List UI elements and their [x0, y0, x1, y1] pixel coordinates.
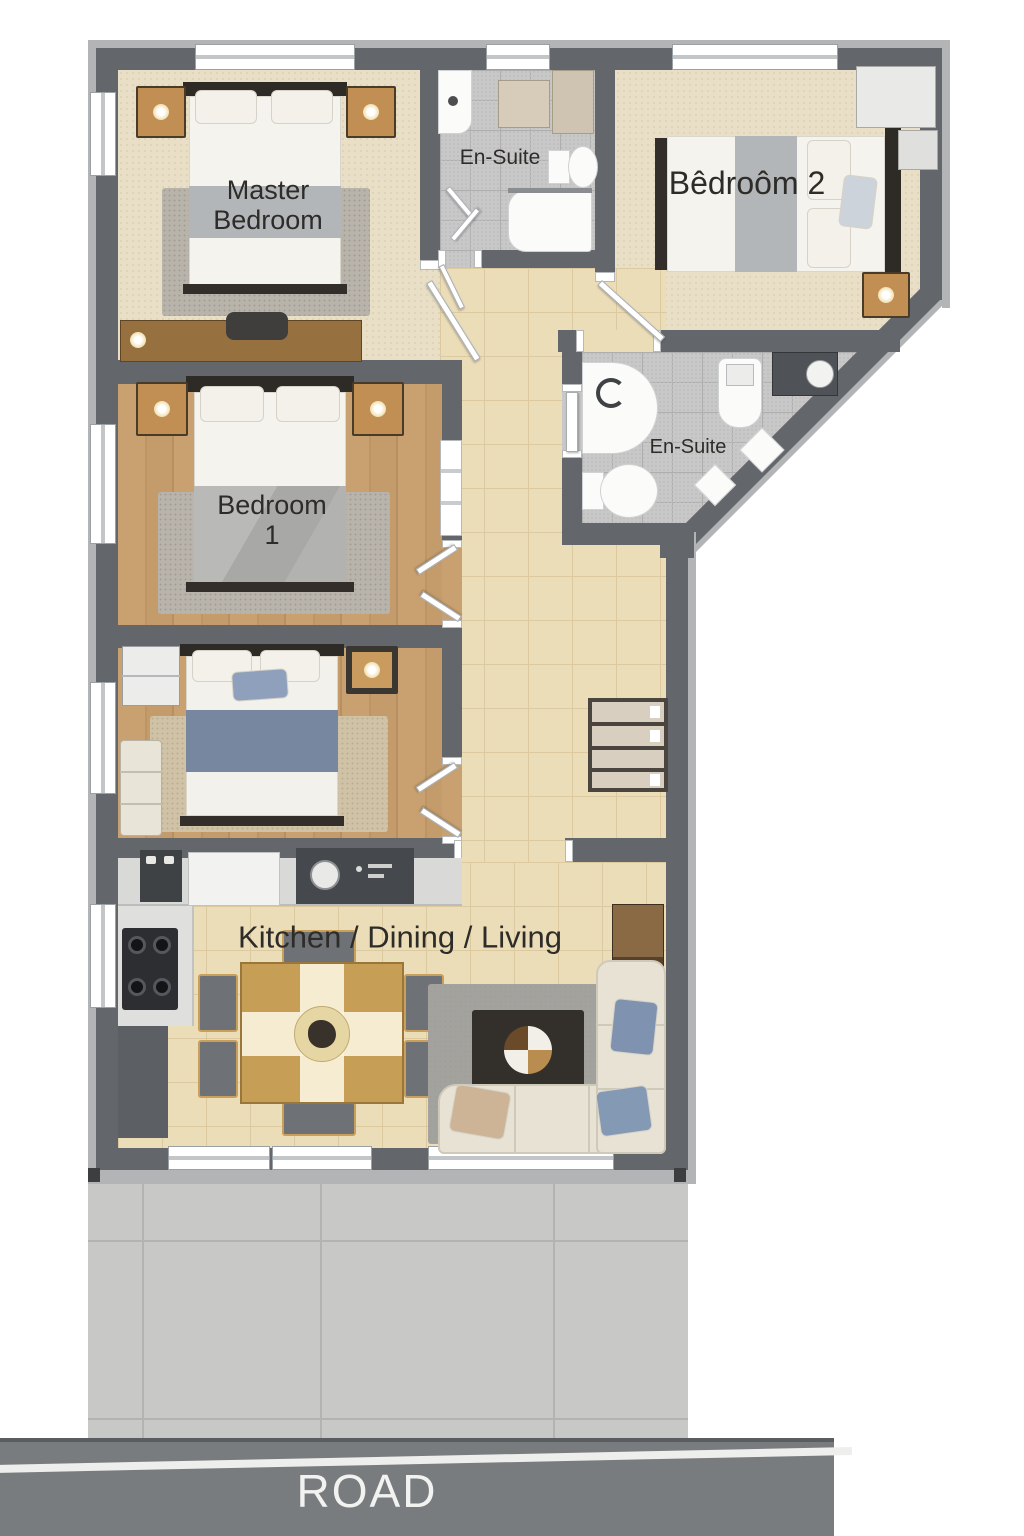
- bench-seam: [120, 803, 162, 805]
- table-lamp: [364, 662, 380, 678]
- kitchen-base-cabinet: [118, 1026, 168, 1138]
- tv-cabinet-top: [613, 905, 663, 957]
- door-jamb: [565, 840, 573, 862]
- floor-plan: Master Bedroom En-Suite Bêdroôm 2 En-Sui…: [0, 0, 1024, 1536]
- wall-ensuite-top-bottom: [480, 250, 615, 268]
- pillow: [200, 386, 264, 422]
- door-jamb: [576, 330, 584, 352]
- label-kitchen-dining-living: Kitchen / Dining / Living: [238, 921, 562, 956]
- door-jamb: [474, 250, 482, 268]
- bedroom2-bed-runner: [735, 136, 797, 272]
- pillow-blue: [231, 668, 289, 702]
- label-line: Bedroom: [217, 490, 327, 520]
- bench-seam: [120, 771, 162, 773]
- label-line: Master: [213, 175, 323, 205]
- table-lamp: [878, 287, 894, 303]
- vanity-basin: [806, 360, 834, 388]
- cabinet-divider: [122, 675, 180, 677]
- door-jamb: [442, 620, 462, 628]
- table-lamp: [154, 401, 170, 417]
- cooktop: [122, 928, 178, 1010]
- sofa-pillow-blue: [595, 1085, 653, 1138]
- table-lamp: [153, 104, 169, 120]
- bedroom3-bed: [180, 644, 344, 826]
- dresser-lamp: [130, 332, 146, 348]
- dining-table: [240, 962, 404, 1104]
- window-ensuite-top: [486, 44, 550, 70]
- sink-basin: [310, 860, 340, 890]
- door-jamb: [562, 384, 582, 392]
- toilet-bowl: [600, 464, 658, 518]
- dining-chair-left-1: [198, 974, 238, 1032]
- coffee-table-decor: [504, 1026, 552, 1074]
- ensuite-mid-toilet: [582, 462, 660, 520]
- bedroom1-bed-footboard: [186, 582, 354, 592]
- wall-end-cap-left: [88, 1168, 100, 1182]
- burner: [153, 978, 171, 996]
- kitchen-island-cabinet: [188, 852, 280, 906]
- bedroom2-wardrobe: [856, 66, 936, 128]
- bedroom3-bed-footboard: [180, 816, 344, 826]
- driveway-joint: [88, 1240, 688, 1242]
- bedroom3-bench: [120, 740, 162, 836]
- sofa-pillow-blue: [609, 998, 658, 1056]
- label-ensuite-top: En-Suite: [460, 146, 541, 170]
- centerpiece-plant: [308, 1020, 336, 1048]
- bedroom3-bed-denim-blanket: [186, 710, 338, 772]
- label-master-bedroom: Master Bedroom: [213, 175, 323, 235]
- window-kitchen-left: [90, 904, 116, 1008]
- road-edge: [0, 1438, 834, 1442]
- burner: [153, 936, 171, 954]
- pillow-gray: [838, 174, 878, 230]
- shelf: [592, 722, 664, 726]
- master-chair: [226, 312, 288, 340]
- driveway-joint: [553, 1184, 555, 1438]
- bedroom1-wall-panel: [440, 440, 462, 536]
- ensuite-top-toilet: [548, 146, 598, 188]
- hall-shelf-unit: [588, 698, 668, 792]
- shelf-item: [650, 706, 660, 718]
- sink-controls: [368, 864, 392, 868]
- pillow: [195, 90, 257, 124]
- wall-right-lower: [666, 540, 688, 1170]
- toilet-tank: [548, 150, 570, 184]
- shower-head: [726, 364, 754, 386]
- kitchen-sink-unit: [296, 848, 414, 904]
- coffee-table: [472, 1010, 584, 1090]
- window-living-bottom-1: [168, 1146, 270, 1170]
- shower-drain-swirl: [596, 378, 626, 408]
- wall-ensuite-top-right: [595, 48, 615, 282]
- sofa-seam: [514, 1086, 516, 1152]
- bedroom2-wardrobe-small: [898, 130, 938, 170]
- pillow: [271, 90, 333, 124]
- window-bedroom2-top: [672, 44, 838, 70]
- bedroom2-bed: [655, 128, 913, 280]
- sofa-seam: [588, 1086, 590, 1152]
- kitchen-appliance: [140, 850, 182, 902]
- bedroom2-door-opening: [582, 330, 655, 352]
- dining-chair-bottom: [282, 1102, 356, 1136]
- label-bedroom-1: Bedroom 1: [217, 490, 327, 550]
- sink-drain: [448, 96, 458, 106]
- table-lamp: [363, 104, 379, 120]
- wall-master-right: [420, 48, 440, 270]
- label-bedroom-2: Bêdroôm 2: [669, 166, 826, 202]
- outer-wall-right-upper: [942, 40, 950, 308]
- wall-kitchen-top-right: [565, 838, 666, 862]
- ensuite-top-cabinet: [498, 80, 550, 128]
- pillow: [276, 386, 340, 422]
- toilet-bowl: [568, 146, 598, 188]
- window-living-bottom-2: [272, 1146, 372, 1170]
- window-master-left: [90, 92, 116, 176]
- appliance-knob: [146, 856, 156, 864]
- outer-wall-left: [88, 40, 96, 1184]
- bedroom2-bed-footboard: [655, 138, 667, 270]
- outer-wall-bottom: [88, 1170, 688, 1184]
- dining-chair-left-2: [198, 1040, 238, 1098]
- shelf: [592, 746, 664, 750]
- driveway: [88, 1184, 688, 1438]
- shelf-item: [650, 730, 660, 742]
- appliance-knob: [164, 856, 174, 864]
- driveway-joint: [320, 1184, 322, 1438]
- ensuite-top-tall-cabinet: [552, 70, 594, 134]
- door-jamb: [595, 272, 615, 282]
- outer-wall-right-lower: [688, 532, 696, 1184]
- shelf-item: [650, 774, 660, 786]
- wall-end-cap-right: [674, 1168, 686, 1182]
- wall-junction-patch: [660, 528, 694, 558]
- window-master-top: [195, 44, 355, 70]
- ensuite-mid-door-leaf: [566, 392, 578, 452]
- ensuite-top-shower: [508, 190, 592, 252]
- sofa-pillow-tan: [448, 1084, 511, 1141]
- label-line: Bedroom: [213, 205, 323, 235]
- master-bed-footboard: [183, 284, 347, 294]
- table-lamp: [370, 401, 386, 417]
- label-ensuite-mid: En-Suite: [650, 436, 727, 458]
- faucet: [356, 866, 362, 872]
- window-bedroom1-left: [90, 424, 116, 544]
- burner: [128, 978, 146, 996]
- burner: [128, 936, 146, 954]
- door-jamb: [420, 260, 440, 270]
- shelf: [592, 768, 664, 772]
- bedroom1-bed: [186, 376, 354, 592]
- driveway-joint: [142, 1184, 144, 1438]
- label-line: 1: [217, 520, 327, 550]
- driveway-joint: [88, 1418, 688, 1420]
- label-road: ROAD: [297, 1466, 438, 1518]
- shower-rim: [508, 188, 592, 193]
- sink-controls: [368, 874, 384, 878]
- window-bedroom3-left: [90, 682, 116, 794]
